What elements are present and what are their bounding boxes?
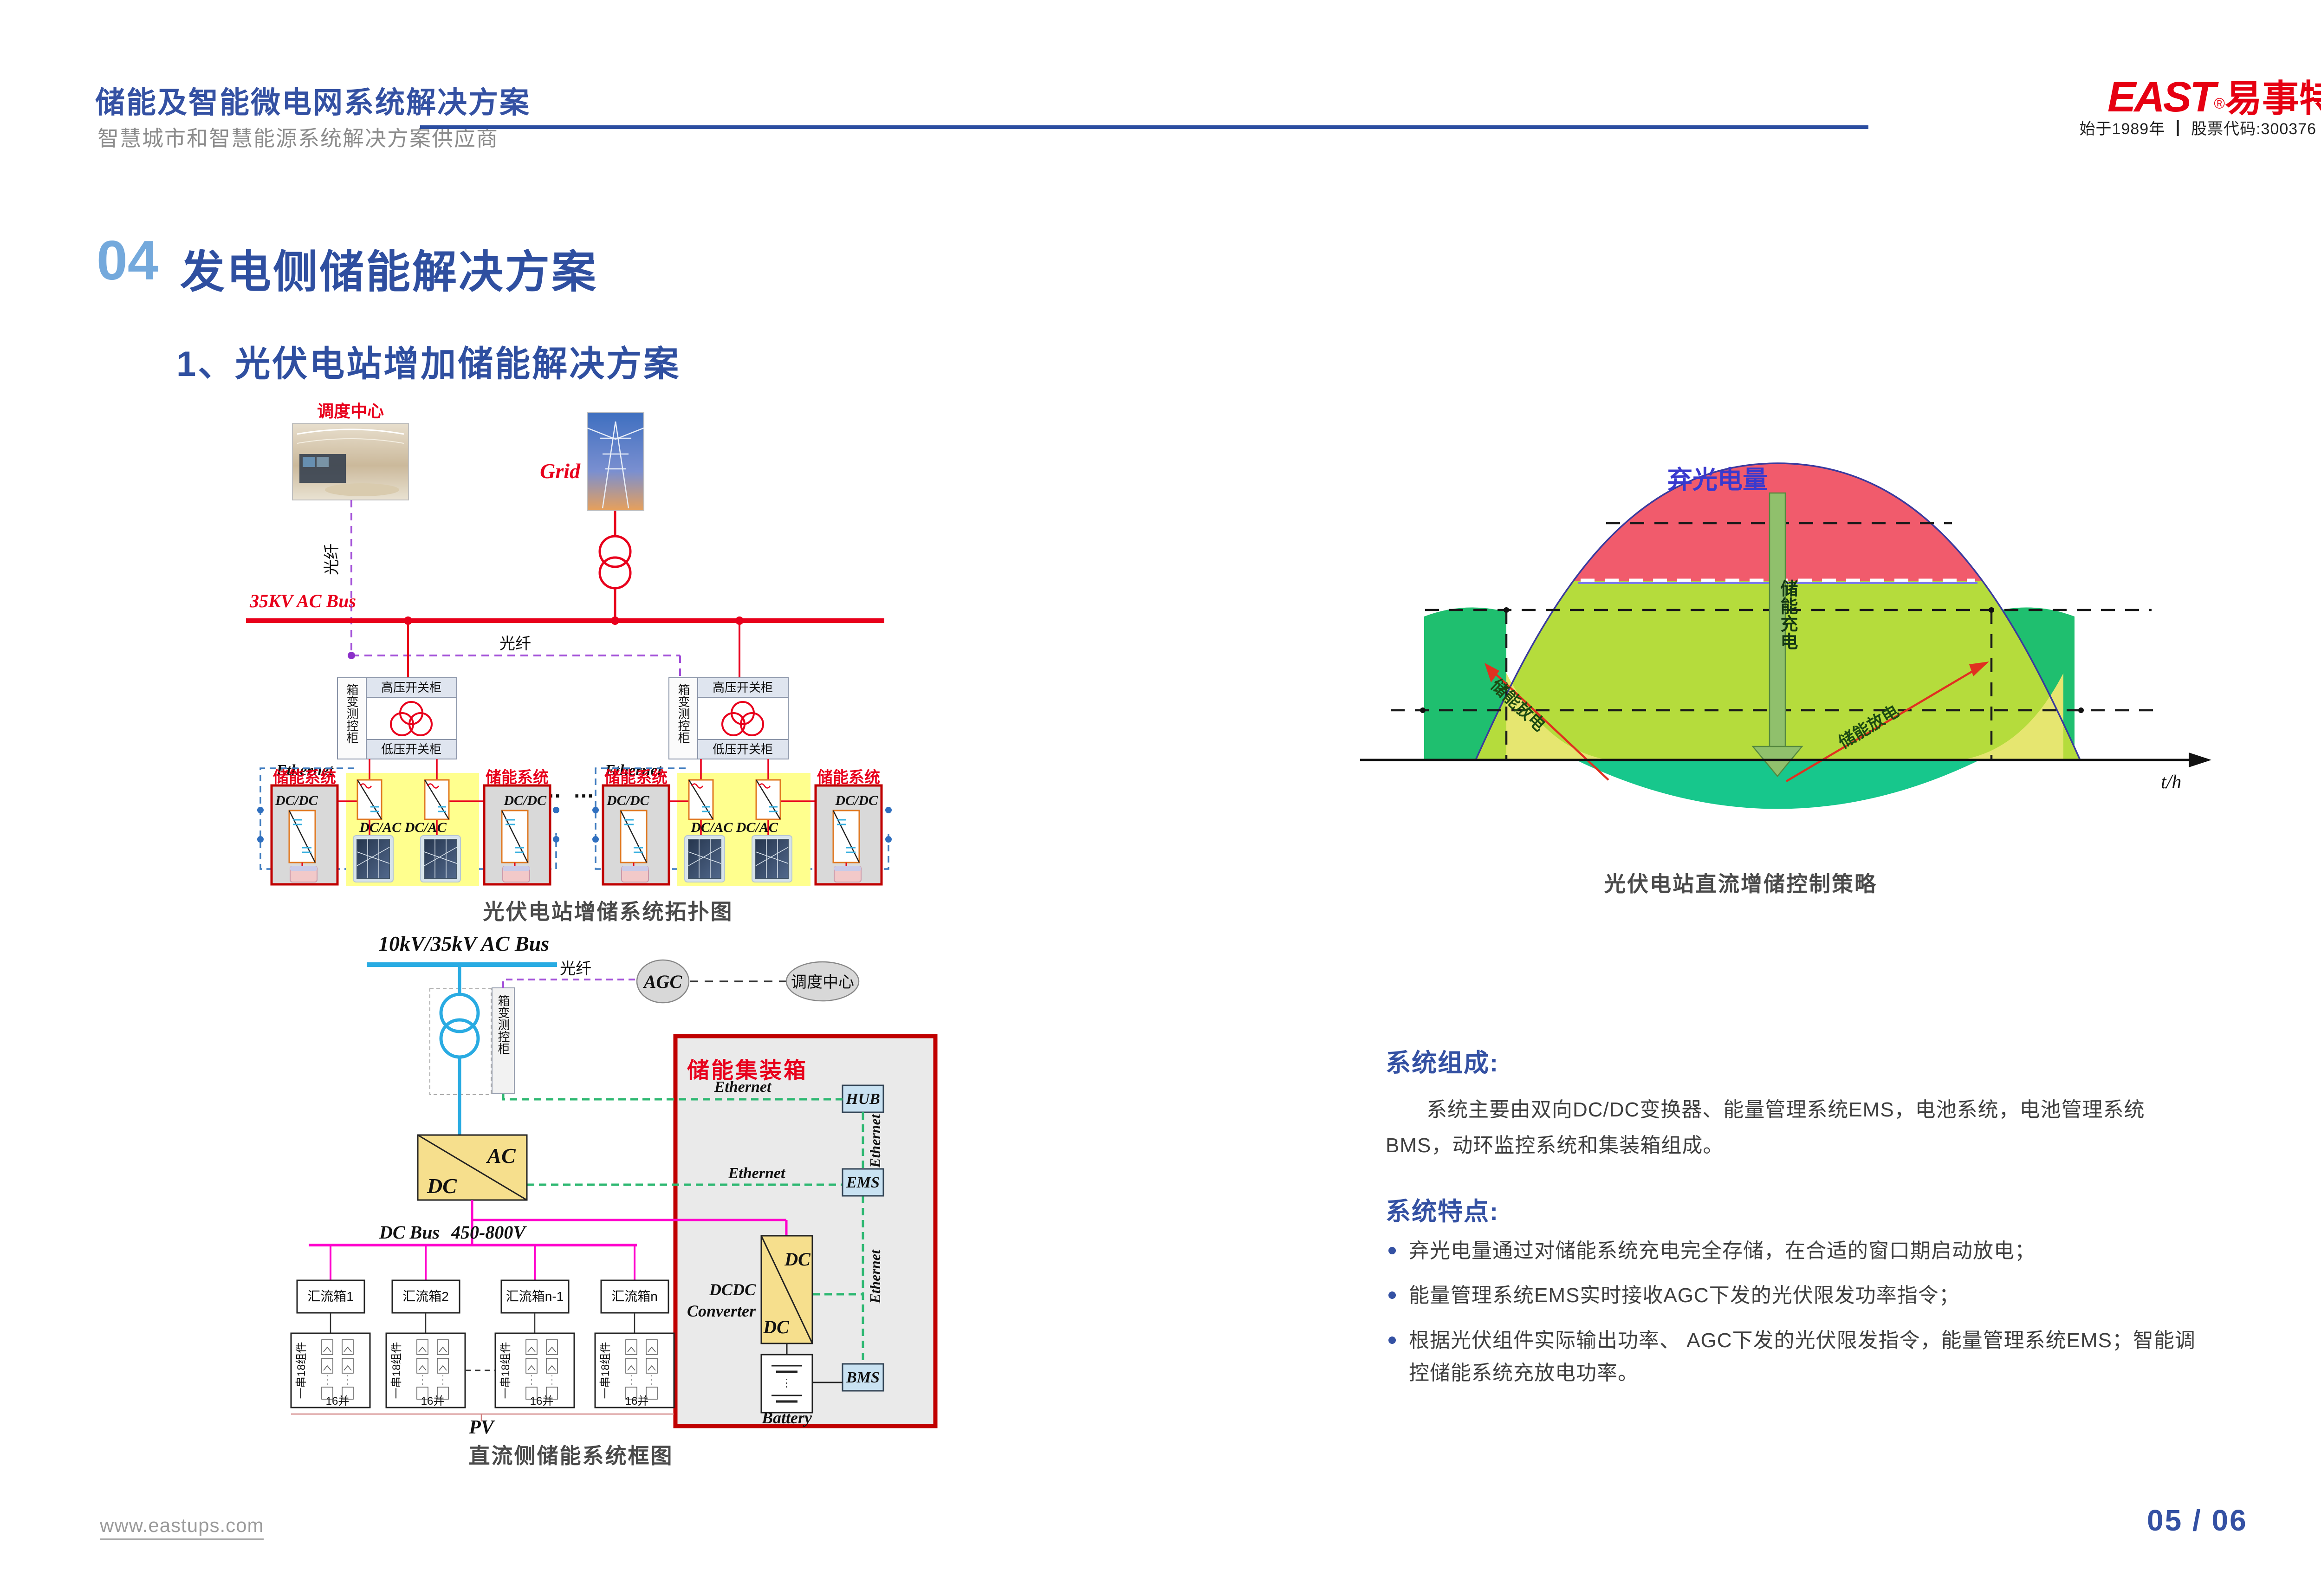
topology-caption: 光伏电站增储系统拓扑图 <box>223 895 993 926</box>
ess-box: 储能系统 DC/DC <box>484 769 550 884</box>
composition-body: 系统主要由双向DC/DC变换器、能量管理系统EMS，电池系统，电池管理系统BMS… <box>1386 1092 2193 1163</box>
parallel-label: 16并 <box>326 1395 350 1408</box>
website-link[interactable]: www.eastups.com <box>100 1514 264 1540</box>
feature-text: 能量管理系统EMS实时接收AGC下发的光伏限发功率指令； <box>1409 1279 1960 1312</box>
dc-bus-voltage: 450-800V <box>451 1222 527 1243</box>
composition-heading: 系统组成: <box>1386 1042 1499 1079</box>
curtailed-label: 弃光电量 <box>1667 466 1768 494</box>
ess-label: 储能系统 <box>486 769 549 786</box>
dc-diagram-caption: 直流侧储能系统框图 <box>223 1439 919 1470</box>
hv-cabinet-label: 高压开关柜 <box>381 681 441 694</box>
ethernet-label: Ethernet <box>867 1249 883 1304</box>
dc-bus-title: 10kV/35kV AC Bus <box>378 932 549 955</box>
pv-string-group: 一串18组件 16并 <box>495 1333 574 1408</box>
dcdc-label: DC/DC <box>835 793 878 808</box>
combiner-boxes: 汇流箱1 汇流箱2 汇流箱n-1 汇流箱n <box>297 1280 668 1313</box>
string-links <box>331 1313 635 1333</box>
dcdc-label: DC/DC <box>503 793 547 808</box>
bullet-icon <box>1388 1247 1396 1254</box>
string-label: 一串18组件 <box>499 1342 512 1399</box>
fiber-line-2 <box>503 980 635 988</box>
strategy-chart: 储能充电 储能放电 储能放电 弃光电量 t/h <box>1346 409 2228 854</box>
box-cabinet-label: 箱变测控柜 <box>345 683 359 744</box>
dcdc-converter-label: Converter <box>687 1302 756 1320</box>
parallel-label: 16并 <box>625 1395 649 1408</box>
dc-bus-label: DC Bus <box>379 1222 440 1243</box>
dispatch-center-label: 调度中心 <box>317 402 384 421</box>
bullet-icon <box>1388 1336 1396 1344</box>
topology-diagram: 调度中心 Grid 光纤 光纤 <box>223 399 993 891</box>
pv-string-group: 一串18组件 16并 <box>386 1333 465 1408</box>
dc-label: DC <box>427 1174 457 1198</box>
hub-label: HUB <box>845 1090 880 1108</box>
lv-cabinet-label: 低压开关柜 <box>713 742 773 756</box>
axis-arrow-icon <box>2189 753 2211 767</box>
string-label: 一串18组件 <box>295 1342 308 1399</box>
box-cabinet-label: 箱变测控柜 <box>676 683 690 744</box>
combiner-label: 汇流箱1 <box>307 1289 354 1304</box>
document-title: 储能及智能微电网系统解决方案 <box>95 79 531 122</box>
section-subtitle: 1、光伏电站增加储能解决方案 <box>176 335 681 386</box>
grid-transformer-icon <box>600 511 630 618</box>
feature-item: 弃光电量通过对储能系统充电完全存储，在合适的窗口期启动放电； <box>1386 1235 2203 1267</box>
strategy-caption: 光伏电站直流增储控制策略 <box>1369 867 2112 898</box>
pv-string-group: 一串18组件 16并 <box>291 1333 370 1408</box>
fiber-vertical-label: 光纤 <box>323 544 341 575</box>
grid-pylon-photo <box>587 412 644 511</box>
hv-cabinet-label: 高压开关柜 <box>713 681 773 694</box>
ess-label: 储能系统 <box>273 769 336 786</box>
bullet-icon <box>1388 1291 1396 1299</box>
combiner-label: 汇流箱n <box>611 1289 658 1304</box>
dcdc-label: DC/DC <box>275 793 318 808</box>
ethernet-label: Ethernet <box>728 1165 786 1182</box>
charge-label: 储能充电 <box>1777 579 1798 650</box>
step-up-transformer-icon <box>441 965 478 1135</box>
ethernet-label: Ethernet <box>867 1114 883 1168</box>
section-number: 04 <box>97 228 158 292</box>
battery-label: Battery <box>761 1408 812 1427</box>
registered-mark-icon: ® <box>2214 95 2225 112</box>
section-title: 发电侧储能解决方案 <box>180 236 598 300</box>
combiner-drops <box>331 1245 635 1280</box>
grid-label: Grid <box>540 459 581 483</box>
dcac-label: DC/AC DC/AC <box>690 820 778 835</box>
dc-label: DC <box>763 1317 790 1337</box>
feature-text: 弃光电量通过对储能系统充电完全存储，在合适的窗口期启动放电； <box>1409 1235 2036 1267</box>
pv-string-groups: 一串18组件 16并 一串18组件 <box>291 1333 674 1408</box>
pv-label: PV <box>468 1417 495 1434</box>
ess-label: 储能系统 <box>817 769 880 786</box>
features-heading: 系统特点: <box>1386 1191 1499 1227</box>
bms-label: BMS <box>846 1369 880 1386</box>
dcdc-label: DC/DC <box>606 793 650 808</box>
header-divider <box>420 125 1868 129</box>
fiber-label-2: 光纤 <box>560 960 591 978</box>
dc-label: DC <box>784 1249 811 1270</box>
ess-box: 储能系统 DC/DC <box>603 769 669 884</box>
combiner-label: 汇流箱2 <box>402 1289 449 1304</box>
ems-label: EMS <box>846 1174 880 1191</box>
string-label: 一串18组件 <box>599 1342 612 1399</box>
east-logo: EAST®易事特 <box>2107 69 2316 123</box>
parallel-label: 16并 <box>530 1395 554 1408</box>
feature-item: 根据光伏组件实际输出功率、 AGC下发的光伏限发指令，能量管理系统EMS；智能调… <box>1386 1324 2203 1390</box>
dcac-label: DC/AC DC/AC <box>359 820 447 835</box>
bus-drops <box>408 621 739 678</box>
combiner-label: 汇流箱n-1 <box>506 1289 564 1304</box>
dcdc-converter-label: DCDC <box>709 1280 756 1299</box>
fiber-horizontal-label: 光纤 <box>499 635 531 653</box>
east-logo-latin: EAST <box>2107 73 2214 121</box>
ac-bus-label: 35KV AC Bus <box>249 590 356 611</box>
page: 储能及智能微电网系统解决方案 智慧城市和智慧能源系统解决方案供应商 EAST®易… <box>0 0 2321 1596</box>
fiber-node <box>348 652 355 659</box>
parallel-label: 16并 <box>421 1395 445 1408</box>
feature-item: 能量管理系统EMS实时接收AGC下发的光伏限发功率指令； <box>1386 1279 2203 1312</box>
features-list: 弃光电量通过对储能系统充电完全存储，在合适的窗口期启动放电； 能量管理系统EMS… <box>1386 1235 2203 1390</box>
dc-side-diagram: 10kV/35kV AC Bus 箱变测控柜 光纤 AGC 调度中心 储能集装箱… <box>279 924 975 1434</box>
agc-label: AGC <box>642 971 683 992</box>
east-logo-cn: 易事特 <box>2225 79 2321 120</box>
box-cabinet-label: 箱变测控柜 <box>496 994 510 1055</box>
box-transformer-unit-2: 箱变测控柜 高压开关柜 低压开关柜 <box>669 678 788 759</box>
box-transformer-unit-1: 箱变测控柜 高压开关柜 低压开关柜 <box>337 678 457 759</box>
ess-label: 储能系统 <box>604 769 668 786</box>
dispatch-label-2: 调度中心 <box>791 973 854 991</box>
ac-label: AC <box>486 1144 516 1168</box>
lv-cabinet-label: 低压开关柜 <box>381 742 441 756</box>
page-number: 05 / 06 <box>2147 1503 2248 1538</box>
string-label: 一串18组件 <box>390 1342 403 1399</box>
feature-text: 根据光伏组件实际输出功率、 AGC下发的光伏限发指令，能量管理系统EMS；智能调… <box>1409 1324 2203 1390</box>
ess-box: 储能系统 DC/DC <box>816 769 882 884</box>
ethernet-label: Ethernet <box>714 1078 772 1096</box>
dispatch-center-photo <box>292 423 408 500</box>
pv-string-group: 一串18组件 16并 <box>595 1333 674 1408</box>
logo-tagline: 始于1989年 ┃ 股票代码:300376 <box>1871 116 2316 139</box>
ess-box: 储能系统 DC/DC <box>272 769 337 884</box>
axis-label: t/h <box>2161 772 2181 793</box>
